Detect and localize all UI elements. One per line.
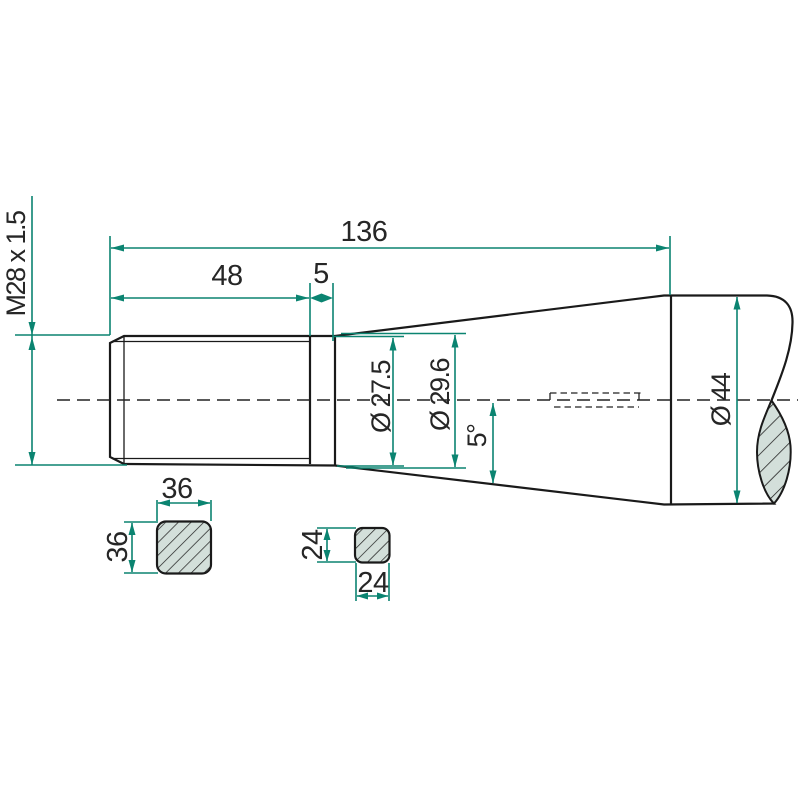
- taper-angle-label: 5°: [462, 424, 492, 448]
- square-24-height-label: 24: [297, 529, 329, 561]
- dia-27-5-label: Ø 27.5: [366, 360, 396, 433]
- dia-29-6-label: Ø 29.6: [425, 358, 455, 431]
- drawing-canvas: 136 48 5 M28 x 1.5 Ø 27.5: [0, 0, 800, 800]
- thread-spec-label: M28 x 1.5: [1, 211, 31, 317]
- break-section-hatch: [757, 401, 791, 504]
- square-36-shape: [157, 522, 211, 574]
- square-24-width-label: 24: [357, 567, 389, 599]
- square-36-width-label: 36: [161, 473, 192, 505]
- dim-total-length: 136: [110, 216, 670, 335]
- dim-36-height: 36: [102, 522, 158, 573]
- square-24-shape: [355, 528, 390, 563]
- total-length-label: 136: [341, 216, 388, 248]
- dim-collar: 5: [310, 258, 333, 341]
- thread-length-label: 48: [211, 260, 242, 292]
- dim-thread-spec: M28 x 1.5: [1, 196, 127, 465]
- section-square-36: 36 36: [102, 473, 211, 574]
- dim-thread-length: 48: [111, 260, 310, 336]
- dim-24-width: 24: [356, 563, 389, 601]
- dim-36-width: 36: [157, 473, 211, 521]
- dim-24-height: 24: [297, 528, 356, 562]
- square-36-height-label: 36: [102, 531, 134, 562]
- dim-dia-27-5: Ø 27.5: [333, 337, 404, 467]
- drawing-page: 136 48 5 M28 x 1.5 Ø 27.5: [0, 0, 800, 800]
- dia-44-label: Ø 44: [706, 372, 736, 426]
- collar-width-label: 5: [313, 258, 329, 290]
- dim-dia-44: Ø 44: [706, 297, 741, 504]
- dim-taper-angle: 5°: [462, 403, 497, 484]
- section-square-24: 24 24: [297, 528, 390, 601]
